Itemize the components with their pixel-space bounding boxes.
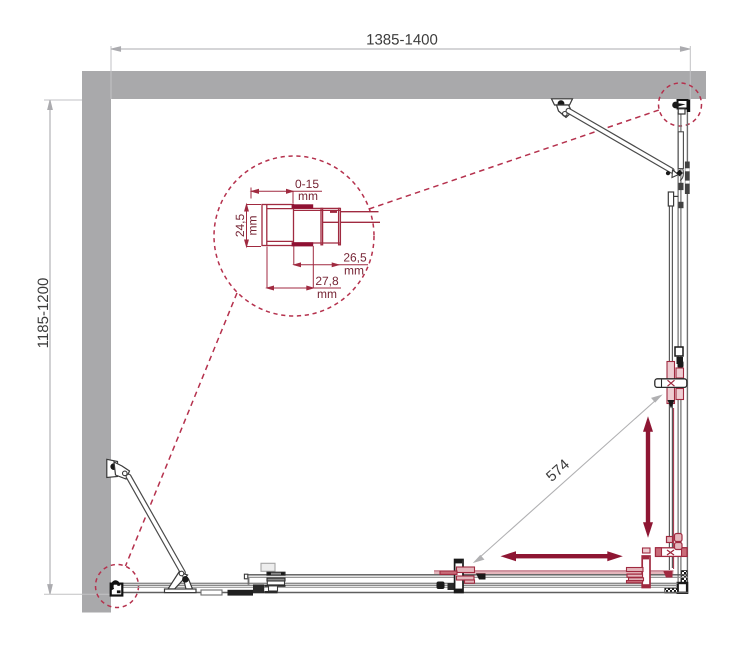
svg-text:mm: mm — [317, 287, 337, 301]
svg-text:mm: mm — [298, 189, 318, 203]
svg-text:mm: mm — [246, 216, 260, 236]
svg-text:mm: mm — [344, 264, 364, 278]
svg-text:1185-1200: 1185-1200 — [35, 278, 52, 349]
svg-text:1385-1400: 1385-1400 — [366, 32, 438, 49]
svg-text:26,5: 26,5 — [343, 251, 367, 265]
svg-text:27,8: 27,8 — [315, 274, 339, 288]
